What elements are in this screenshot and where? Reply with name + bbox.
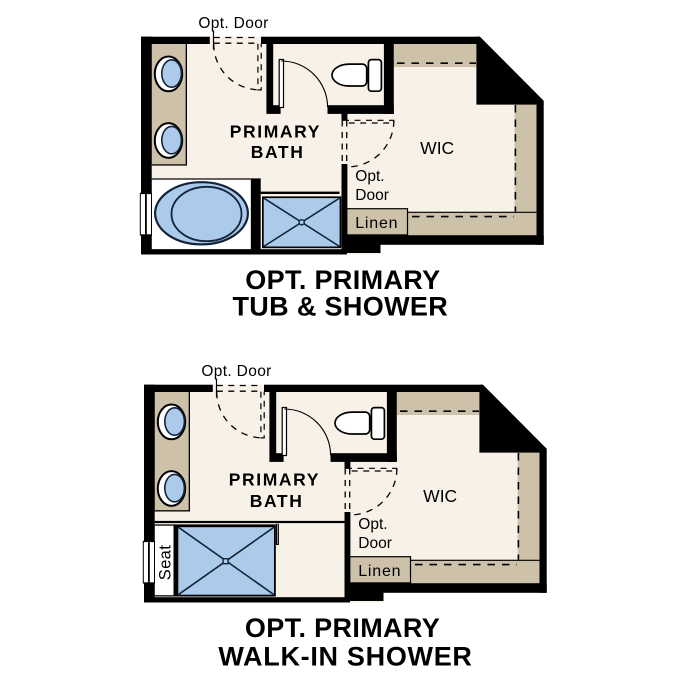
svg-text:BATH: BATH xyxy=(250,491,304,511)
svg-text:Opt.: Opt. xyxy=(355,168,384,185)
svg-text:Linen: Linen xyxy=(358,563,401,580)
svg-text:WALK-IN SHOWER: WALK-IN SHOWER xyxy=(218,641,472,671)
svg-text:Door: Door xyxy=(355,187,389,204)
svg-text:TUB & SHOWER: TUB & SHOWER xyxy=(232,291,448,321)
svg-text:WIC: WIC xyxy=(420,138,454,158)
svg-text:BATH: BATH xyxy=(251,142,305,162)
svg-text:Opt. Door: Opt. Door xyxy=(201,363,271,380)
svg-text:WIC: WIC xyxy=(423,486,457,506)
svg-text:Seat: Seat xyxy=(156,545,174,581)
svg-text:Door: Door xyxy=(358,535,392,552)
svg-text:OPT. PRIMARY: OPT. PRIMARY xyxy=(245,613,440,643)
svg-text:Opt. Door: Opt. Door xyxy=(198,15,268,32)
svg-text:Opt.: Opt. xyxy=(358,516,387,533)
svg-text:Linen: Linen xyxy=(355,215,398,232)
svg-text:PRIMARY: PRIMARY xyxy=(229,469,320,489)
svg-text:PRIMARY: PRIMARY xyxy=(230,121,321,141)
